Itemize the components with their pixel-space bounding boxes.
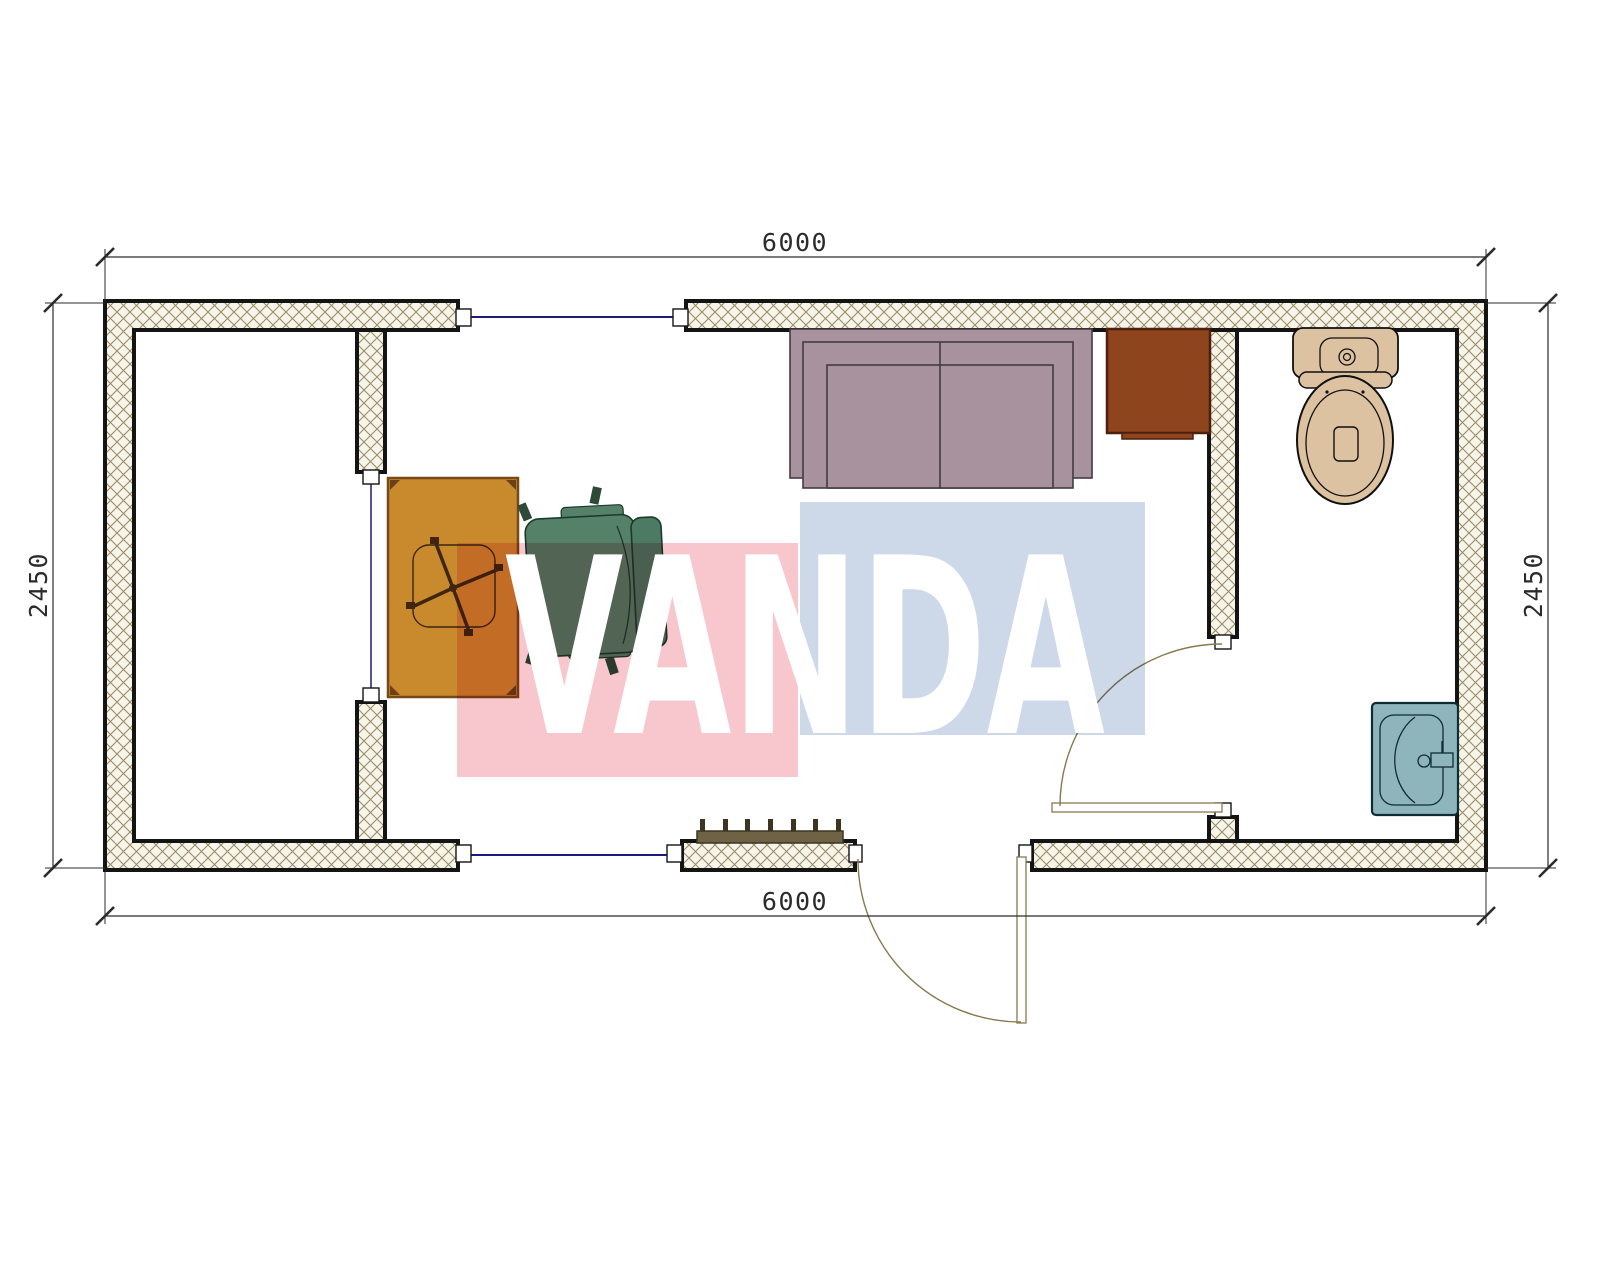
side-table-top <box>1107 329 1210 433</box>
dimension-left: 2450 <box>24 294 105 877</box>
entry-door-swing-arc <box>858 859 1021 1022</box>
toilet-bowl <box>1297 376 1393 504</box>
dimension-top: 6000 <box>96 228 1495 301</box>
radiator-body <box>697 831 843 843</box>
dimension-left-label: 2450 <box>24 552 53 618</box>
entry-door <box>858 857 1026 1023</box>
sink-faucet-spout <box>1431 753 1453 767</box>
toilet <box>1293 328 1398 504</box>
sink <box>1372 703 1458 815</box>
dimension-right-label: 2450 <box>1519 552 1548 618</box>
entry-door-opening <box>855 837 1032 874</box>
entry-door-leaf <box>1017 857 1026 1023</box>
toilet-tank <box>1293 328 1398 378</box>
side-table-foot <box>1122 433 1193 439</box>
watermark-text: VANDA <box>505 506 1105 791</box>
bathroom-door-leaf <box>1052 803 1222 812</box>
partition-bathroom-upper <box>1209 330 1237 637</box>
dimension-top-label: 6000 <box>762 228 828 257</box>
partition-bathroom-lower-stub <box>1209 817 1237 841</box>
floor-plan-canvas: 6000 6000 2450 2450 <box>0 0 1600 1280</box>
radiator-fins <box>700 819 841 831</box>
sofa <box>790 329 1092 488</box>
dimension-bottom-label: 6000 <box>762 887 828 916</box>
dimension-right: 2450 <box>1486 294 1557 877</box>
partition-left-lower <box>357 702 385 841</box>
top-window-opening <box>456 296 688 334</box>
side-table <box>1107 329 1210 439</box>
watermark: VANDA <box>457 502 1145 791</box>
dimension-bottom: 6000 <box>96 872 1495 925</box>
radiator <box>697 819 843 843</box>
partition-left-upper <box>357 330 385 472</box>
